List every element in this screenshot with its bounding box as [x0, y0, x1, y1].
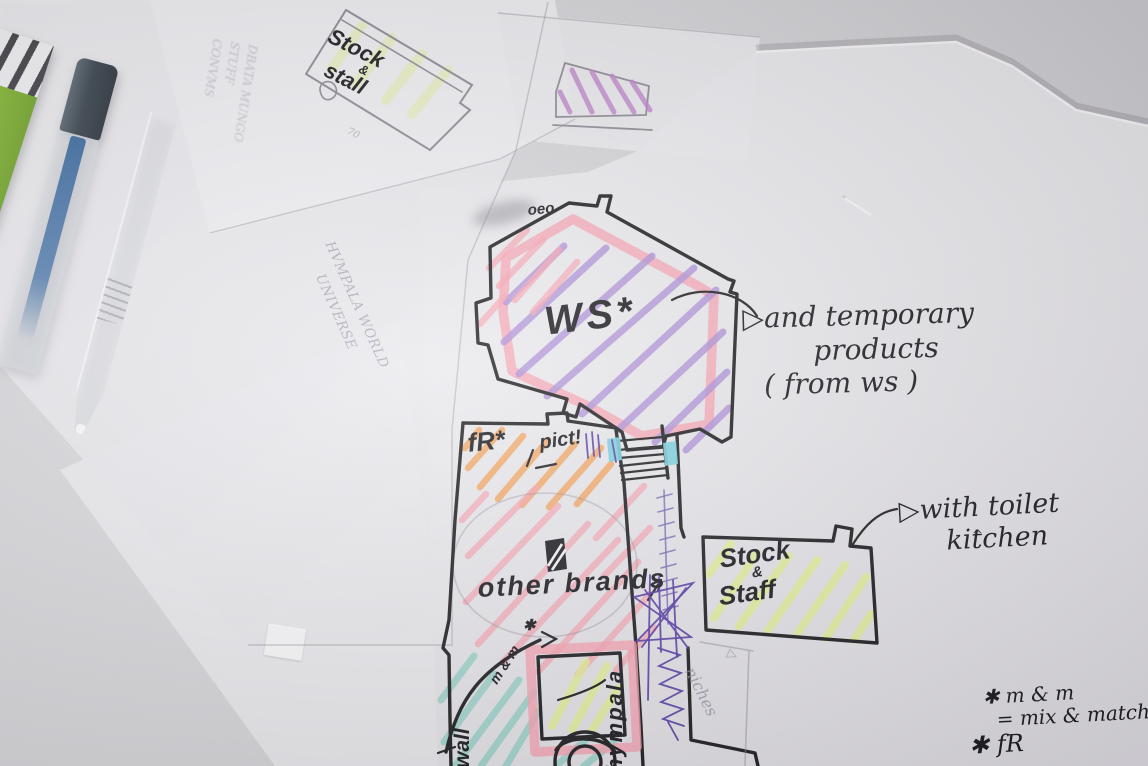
annotation-line: products [813, 330, 975, 368]
triangle-arrow-icon: ▷ [898, 495, 920, 527]
oeo-scribble: oeo [527, 200, 555, 219]
legend-mm: ✱ m & m = mix & match ✱ fR [982, 677, 1148, 759]
annotation-line: ▷and temporary [742, 296, 974, 336]
stock-staff-label: Stock & Staff [718, 538, 797, 608]
wall-note: wall [451, 728, 475, 766]
annotation-line: kitchen [946, 520, 1062, 558]
photo-scene: DBATA MUNGO STUFF CONVMS HVMPALA WORLD U… [0, 0, 1148, 766]
triangle-arrow-icon: ▷ [742, 301, 764, 335]
purple-fragment-sketch [553, 63, 652, 130]
temporary-products-annotation: ▷and temporary products ( from ws ) [742, 296, 976, 403]
toilet-kitchen-annotation: ▷with toilet kitchen [898, 488, 1062, 561]
caret-mark: ^ [972, 528, 983, 543]
floor-plan-drawing [0, 0, 1148, 766]
star-icon: ✱ [523, 616, 536, 634]
hympala-note: hympala [602, 669, 628, 766]
annotation-line: ( from ws ) [764, 363, 976, 402]
fr-area-label: fR* [466, 424, 507, 459]
